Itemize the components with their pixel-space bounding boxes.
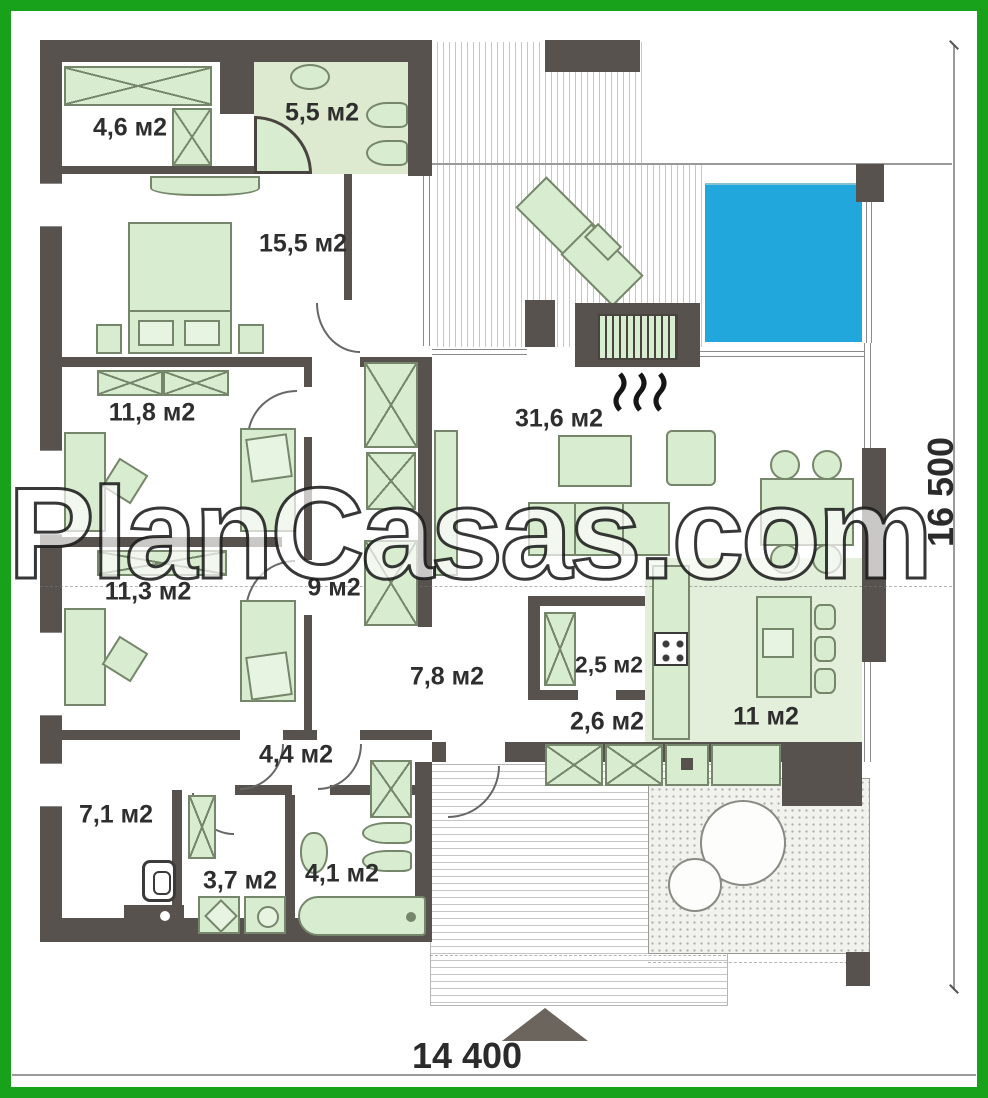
pantry-wall-left: [528, 596, 540, 700]
fireplace-icon: [598, 314, 678, 360]
dishwasher-icon: [665, 744, 709, 786]
cabinet-icon: [370, 760, 412, 818]
wall-bottomrooms-top-c: [360, 730, 432, 740]
washing-machine-icon: [198, 896, 240, 934]
desk-chair-icon: [102, 636, 149, 683]
duct-pier-top: [220, 40, 254, 114]
watermark: PlanCasas.com: [8, 462, 980, 605]
wall-bottomrooms-top-b: [283, 730, 317, 740]
window-left-4: [40, 763, 62, 807]
window-right-2: [864, 662, 871, 762]
nightstand-icon: [96, 324, 122, 354]
floor-plan-page: 4,6 м2 5,5 м2 15,5 м2 11,8 м2 11,3 м2 9 …: [0, 0, 988, 1098]
desk-icon: [64, 608, 106, 706]
bidet-icon: [366, 140, 408, 166]
wall-bath-top-right: [408, 40, 432, 176]
cabinet-icon: [188, 795, 216, 859]
bathtub-icon: [298, 896, 426, 936]
room-label-wardrobe-top: 4,6 м2: [93, 114, 167, 143]
room-label-bathroom-top: 5,5 м2: [285, 99, 359, 128]
heat-waves-icon: [612, 372, 672, 412]
wall-south-a: [432, 742, 446, 762]
roof-beam: [545, 40, 640, 72]
nightstand-icon: [238, 324, 264, 354]
sofa-icon: [240, 600, 296, 702]
pool: [705, 183, 862, 342]
garden-corner-pier: [846, 952, 870, 986]
toilet-icon: [366, 102, 408, 128]
washing-machine-icon: [244, 896, 286, 934]
room-label-hallway: 7,8 м2: [410, 663, 484, 692]
pantry-shelf-icon: [544, 612, 576, 686]
room-label-pantry: 2,5 м2: [575, 652, 643, 679]
wall-laundry-right: [285, 795, 295, 918]
door-arc: [316, 303, 360, 353]
room-label-bedroom: 15,5 м2: [259, 230, 347, 259]
living-north-glazing-2: [700, 351, 868, 357]
wardrobe-icon: [163, 370, 229, 396]
utility-counter: [124, 905, 184, 927]
room-label-corridor: 2,6 м2: [570, 708, 644, 737]
room-label-laundry: 3,7 м2: [203, 867, 277, 896]
dimension-width-label: 14 400: [412, 1035, 522, 1077]
kitchen-cabinet-icon: [605, 744, 663, 786]
pantry-wall-bottom-a: [528, 690, 578, 700]
kitchen-island-icon: [756, 596, 812, 698]
wall-rooms-v-3: [304, 615, 312, 740]
window-left-1: [40, 183, 62, 227]
living-north-glazing-1: [432, 349, 527, 355]
hall-deck-glazing: [423, 176, 430, 346]
room-label-kitchen: 11 м2: [733, 703, 799, 732]
dresser-icon: [150, 176, 260, 196]
room-label-utility: 7,1 м2: [79, 801, 153, 830]
wall-rooms-v-1: [304, 357, 312, 387]
window-left-3: [40, 632, 62, 716]
wall-bed-bottom-a: [62, 357, 305, 367]
kitchen-counter-south: [711, 744, 781, 786]
sink-icon: [290, 64, 330, 90]
wall-bath2-right: [415, 762, 432, 918]
wardrobe-icon: [364, 362, 418, 448]
living-pier: [525, 300, 555, 347]
porch-step-line: [430, 955, 726, 956]
kitchen-cabinet-icon: [545, 744, 603, 786]
room-label-living-room: 31,6 м2: [515, 405, 603, 434]
bush-icon: [668, 858, 722, 912]
room-label-bathroom-2: 4,1 м2: [305, 860, 379, 889]
stove-icon: [654, 632, 688, 666]
wall-south-pier: [782, 742, 862, 806]
boiler-icon: [142, 860, 176, 902]
pool-corner-pier: [856, 164, 884, 202]
wall-bottomrooms-top-a: [62, 730, 240, 740]
room-label-entry-hall: 4,4 м2: [259, 741, 333, 770]
window-right-1: [864, 343, 871, 448]
terrace-right-glazing: [866, 183, 872, 343]
wardrobe-icon: [97, 370, 163, 396]
wardrobe-icon: [64, 66, 212, 106]
wardrobe-icon: [172, 108, 212, 166]
sink-icon: [362, 822, 412, 844]
garden-path-line: [648, 962, 868, 963]
room-label-child-room-1: 11,8 м2: [109, 399, 196, 428]
bar-stool-icon: [814, 636, 836, 662]
bar-stool-icon: [814, 604, 836, 630]
bed-icon: [128, 222, 232, 354]
bar-stool-icon: [814, 668, 836, 694]
